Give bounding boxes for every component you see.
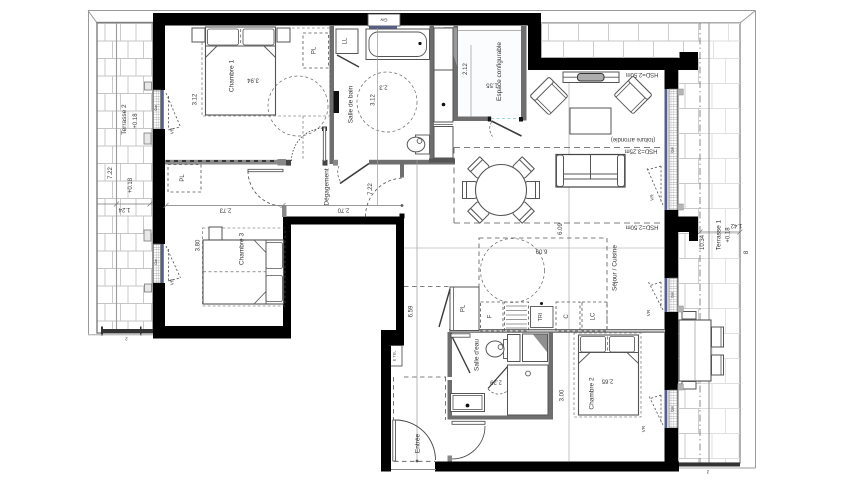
svg-text:TRI: TRI — [538, 313, 544, 321]
svg-text:2.12: 2.12 — [463, 63, 469, 75]
svg-text:3.80: 3.80 — [196, 239, 202, 251]
svg-text:F: F — [488, 314, 494, 318]
svg-text:Terrasse 1: Terrasse 1 — [716, 219, 723, 250]
svg-text:2.65: 2.65 — [601, 378, 613, 384]
svg-text:LL: LL — [343, 37, 349, 44]
svg-text:+0.18: +0.18 — [133, 113, 139, 129]
svg-text:Gw: Gw — [154, 259, 158, 265]
svg-text:3.12: 3.12 — [193, 93, 199, 105]
svg-text:VR: VR — [650, 194, 655, 201]
svg-text:+0.18: +0.18 — [726, 227, 732, 243]
svg-text:Gw: Gw — [671, 147, 675, 153]
svg-text:3.12: 3.12 — [371, 94, 377, 106]
svg-text:3.94: 3.94 — [247, 77, 259, 83]
svg-text:3.00: 3.00 — [560, 389, 566, 401]
svg-text:Gw: Gw — [671, 292, 675, 298]
svg-text:7.22: 7.22 — [108, 167, 114, 179]
svg-text:+0.18: +0.18 — [128, 177, 134, 193]
svg-text:HSD=2.50m: HSD=2.50m — [626, 224, 659, 230]
svg-text:2.3: 2.3 — [379, 84, 388, 90]
svg-text:E TEL: E TEL — [392, 350, 397, 362]
svg-text:C: C — [564, 314, 570, 319]
svg-text:Espace configurable: Espace configurable — [496, 42, 503, 101]
svg-text:PL: PL — [461, 304, 467, 312]
svg-text:2: 2 — [706, 470, 709, 475]
svg-text:Salle d'eau: Salle d'eau — [474, 339, 481, 371]
svg-text:Salle de bain: Salle de bain — [348, 85, 355, 123]
svg-text:Chambre 2: Chambre 2 — [589, 377, 596, 410]
svg-text:Séjour / Cuisine: Séjour / Cuisine — [612, 245, 619, 291]
svg-text:Gw: Gw — [671, 406, 675, 412]
svg-text:(toiture arrondie): (toiture arrondie) — [611, 136, 655, 142]
svg-text:HSD=2.50m: HSD=2.50m — [626, 71, 659, 77]
svg-text:1.42: 1.42 — [730, 222, 742, 228]
svg-text:2.73: 2.73 — [219, 207, 231, 213]
svg-text:VR: VR — [170, 127, 175, 134]
svg-text:PL: PL — [312, 46, 318, 54]
svg-text:Gw: Gw — [380, 18, 388, 23]
svg-text:Gw: Gw — [154, 105, 158, 111]
svg-text:LC: LC — [591, 312, 597, 320]
svg-text:VR: VR — [641, 425, 646, 432]
svg-text:10.34: 10.34 — [700, 234, 706, 250]
svg-text:HSD=3.25m: HSD=3.25m — [625, 148, 658, 154]
svg-text:Terrasse 2: Terrasse 2 — [121, 104, 128, 135]
svg-text:VR: VR — [170, 278, 175, 285]
svg-text:Chambre 3: Chambre 3 — [239, 233, 246, 266]
svg-text:PL: PL — [180, 174, 186, 182]
svg-text:Dégagement: Dégagement — [324, 168, 331, 205]
svg-text:7.22: 7.22 — [368, 183, 374, 195]
svg-text:6.59: 6.59 — [409, 305, 415, 317]
svg-text:1.55: 1.55 — [486, 82, 498, 88]
svg-text:Chambre 1: Chambre 1 — [229, 60, 236, 93]
svg-text:VR: VR — [646, 309, 651, 316]
svg-text:2: 2 — [125, 337, 128, 342]
svg-text:2.70: 2.70 — [337, 207, 349, 213]
svg-text:1.24: 1.24 — [118, 206, 130, 212]
svg-text:6.09: 6.09 — [535, 248, 547, 254]
svg-text:2.29: 2.29 — [490, 379, 502, 385]
svg-text:Entrée: Entrée — [415, 434, 422, 454]
svg-text:6.09: 6.09 — [558, 223, 564, 235]
